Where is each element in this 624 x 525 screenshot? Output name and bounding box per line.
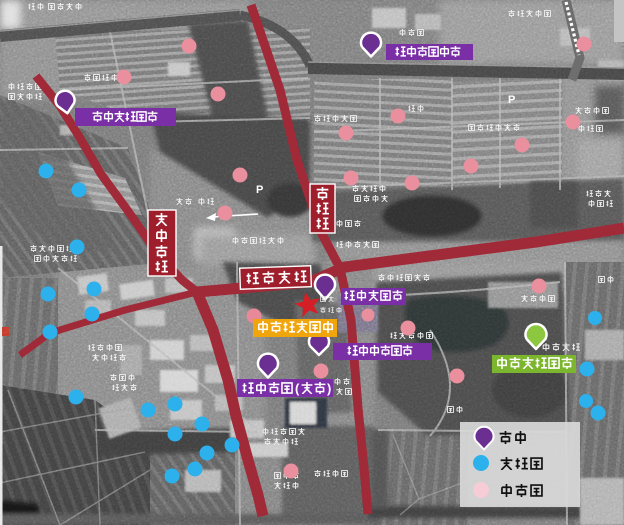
svg-text:P: P xyxy=(256,184,263,196)
svg-text:P: P xyxy=(508,94,515,106)
svg-text:): ) xyxy=(327,381,331,396)
svg-text:(: ( xyxy=(295,381,300,396)
